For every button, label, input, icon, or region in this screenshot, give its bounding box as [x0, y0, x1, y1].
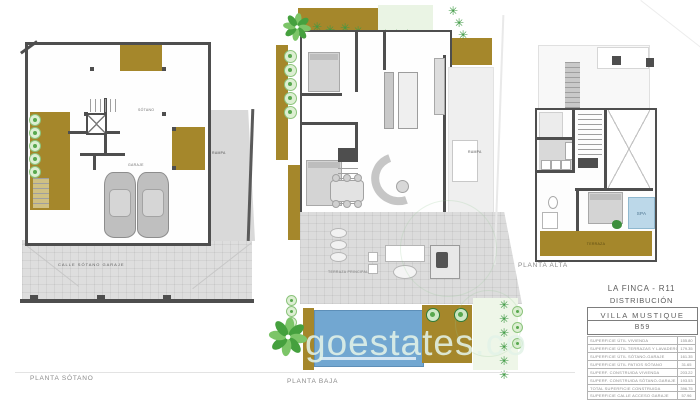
sheet-rule [15, 372, 575, 373]
unit-box: B59 [587, 320, 698, 335]
plant-icon [284, 50, 297, 63]
area-value: 57.96 [677, 392, 695, 399]
room-label-garaje: GARAJE [128, 163, 144, 167]
potted-plant-icon [426, 308, 440, 322]
interior-wall [604, 108, 607, 190]
chair [332, 174, 340, 182]
spa: SPA [628, 197, 655, 229]
column-marker [172, 127, 176, 131]
project-name: LA FINCA - R11 [585, 284, 698, 293]
kitchen-appliances [384, 72, 394, 129]
stairs [33, 178, 49, 208]
wall-pier [97, 295, 105, 302]
area-value: 31.65 [677, 361, 695, 368]
areas-other-table: SUPERFICIE CALLE ACCESO GARAJE 57.96 [587, 392, 696, 400]
outdoor-stool [368, 252, 378, 262]
interior-wall [383, 32, 386, 70]
stair-wall [338, 148, 358, 162]
interior-wall [535, 170, 575, 173]
wall-pier [30, 295, 38, 302]
sheet-subtitle: DISTRIBUCIÓN [585, 296, 698, 305]
plot-line [494, 15, 504, 265]
villa-name: VILLA MUSTIQUE [600, 311, 684, 320]
interior-wall [575, 188, 653, 191]
plant-icon [284, 106, 297, 119]
column-marker [172, 166, 176, 170]
kitchen-island [398, 72, 418, 129]
chair [343, 174, 351, 182]
chair [354, 174, 362, 182]
stairs [90, 99, 118, 112]
chair [332, 200, 340, 208]
roof-void [597, 47, 649, 69]
bath-fixture [551, 160, 561, 170]
plant-icon [29, 140, 41, 152]
area-label: SUPERF. CONSTRUIDA SÓTANO-GARAJE [588, 378, 677, 383]
ghost-flower [455, 290, 522, 357]
area-label: SUPERFICIE CALLE ACCESO GARAJE [588, 393, 677, 398]
side-strip [288, 165, 300, 240]
plant-icon [284, 64, 297, 77]
column-marker [612, 56, 621, 65]
column-marker [90, 67, 94, 71]
elevator-shaft [86, 113, 107, 135]
kitchen-counter [434, 58, 445, 115]
area-value: 179.35 [677, 345, 695, 352]
plan-alta: SPA TERRAZA PLANTA ALTA [490, 0, 700, 290]
patio-top [120, 45, 162, 71]
interior-wall [302, 93, 342, 96]
plan-title-sotano: PLANTA SÓTANO [30, 375, 94, 382]
ramp-label: RAMPA [212, 151, 226, 155]
title-block: LA FINCA - R11 DISTRIBUCIÓN VILLA MUSTIQ… [585, 282, 698, 400]
ramp-label: RAMPA [468, 150, 482, 154]
plant-icon [286, 306, 297, 317]
area-value: 193.53 [677, 377, 695, 384]
areas-util-table: SUPERFICIE ÚTIL VIVIENDA 155.80 SUPERFIC… [587, 337, 696, 369]
interior-wall [355, 32, 358, 92]
column-marker [162, 112, 166, 116]
stairs-up [565, 62, 580, 110]
floorplan-sheet: CALLE SÓTANO GARAJE RAMPA [0, 0, 700, 400]
interior-wall [93, 153, 96, 170]
area-value: 203.22 [677, 369, 695, 376]
areas-built-table: SUPERF. CONSTRUIDA VIVIENDA 203.22 SUPER… [587, 369, 696, 393]
sun-lounger [330, 228, 347, 238]
plan-sotano: CALLE SÓTANO GARAJE RAMPA [0, 0, 260, 400]
spa-label: SPA [637, 211, 647, 216]
area-label: SUPERFICIE ÚTIL SÓTANO-GARAJE [588, 354, 677, 359]
driveway-bottom-wall [20, 299, 254, 303]
interior-wall [302, 122, 357, 125]
side-court [452, 140, 478, 182]
plan-title-baja: PLANTA BAJA [287, 378, 338, 385]
bath-fixture [561, 160, 571, 170]
plant-icon [29, 166, 41, 178]
ghost-flower [400, 200, 497, 297]
tree-icon: ✳ [454, 18, 464, 28]
upper-terrace: TERRAZA [540, 231, 652, 256]
plant-blob [612, 220, 622, 229]
area-value: 161.35 [677, 353, 695, 360]
plant-icon [284, 92, 297, 105]
area-label: SUPERFICIE ÚTIL PATIOS SÓTANO [588, 362, 677, 367]
outdoor-stool [368, 264, 378, 274]
interior-wall [535, 137, 573, 140]
plant-icon [286, 317, 297, 328]
side-table [396, 180, 409, 193]
car-icon [137, 172, 169, 238]
chair [343, 200, 351, 208]
sun-lounger [330, 240, 347, 250]
plant-icon [29, 127, 41, 139]
pool-deck-left [303, 308, 314, 370]
sun-lounger [330, 252, 347, 262]
plant-icon [286, 295, 297, 306]
unit-number: B59 [635, 324, 650, 331]
area-label: SUPERFICIE ÚTIL TERRAZAS Y LAVADERO [588, 346, 677, 351]
tree-icon: ✳ [448, 6, 458, 16]
bed [308, 52, 340, 92]
driveway-area [22, 240, 252, 301]
wall-pier [163, 295, 171, 302]
area-label: SUPERF. CONSTRUIDA VIVIENDA [588, 370, 677, 375]
plant-icon [29, 114, 41, 126]
plant-icon [286, 328, 297, 339]
area-label: SUPERFICIE ÚTIL VIVIENDA [588, 338, 677, 343]
patio-right [172, 127, 205, 170]
area-row: SUPERFICIE CALLE ACCESO GARAJE 57.96 [587, 391, 696, 400]
upper-terrace-label: TERRAZA [587, 242, 605, 246]
column-marker [646, 58, 654, 67]
plant-icon [284, 78, 297, 91]
plant-icon [29, 153, 41, 165]
stair-wall [578, 158, 598, 168]
street-label: CALLE SÓTANO GARAJE [58, 262, 125, 267]
closet-area [539, 112, 563, 140]
terrace-label: TERRAZA PRINCIPAL [328, 270, 368, 274]
interior-wall [576, 188, 579, 232]
column-marker [162, 67, 166, 71]
interior-wall [80, 153, 125, 156]
tree-icon: ✳ [458, 30, 468, 40]
area-value: 155.80 [677, 337, 695, 344]
tree-icon: ✳ [499, 356, 509, 366]
shower [542, 212, 558, 229]
car-icon [104, 172, 136, 238]
stairs [578, 114, 602, 158]
room-label-sotano: SÓTANO [138, 108, 154, 112]
dining-table [330, 180, 364, 202]
plan-title-alta: PLANTA ALTA [518, 262, 568, 269]
chair [354, 200, 362, 208]
toilet [548, 196, 558, 209]
interior-wall [572, 108, 575, 170]
pool-lane-stripe [320, 357, 416, 360]
double-height-void [608, 110, 650, 188]
bath-fixture [541, 160, 551, 170]
